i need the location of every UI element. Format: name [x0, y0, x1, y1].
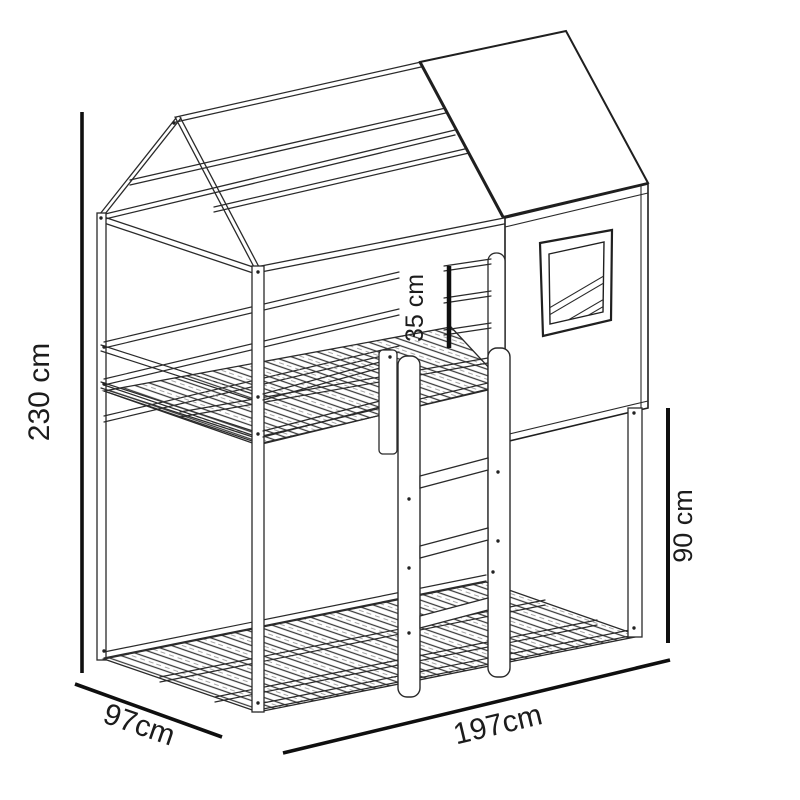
ladder-rung — [420, 528, 488, 558]
dimension-label-clearance: 90 cm — [668, 489, 698, 563]
ladder-left-stile — [398, 356, 420, 697]
dimension-97: 97cm — [75, 684, 222, 753]
dimension-label-length: 197cm — [450, 698, 545, 751]
lower-bunk-platform — [104, 582, 640, 712]
front-right-post — [628, 408, 642, 637]
upper-bunk-platform — [104, 327, 505, 445]
dimension-label-total-height: 230 cm — [23, 343, 56, 441]
ladder-right-stile — [488, 348, 510, 677]
front-guard-end-post — [379, 350, 397, 454]
front-left-post — [252, 266, 264, 712]
dimension-230: 230 cm — [23, 112, 82, 673]
dimension-label-guard-rail: 35 cm — [401, 274, 429, 342]
dimension-90: 90 cm — [668, 408, 698, 643]
bunk-bed-house-diagram: 230 cm 35 cm 90 cm 97cm 197cm — [0, 0, 800, 800]
house-wall — [505, 184, 648, 442]
rear-left-post — [97, 213, 106, 660]
technical-drawing-page: 230 cm 35 cm 90 cm 97cm 197cm — [0, 0, 800, 800]
ladder-rung — [420, 458, 488, 488]
